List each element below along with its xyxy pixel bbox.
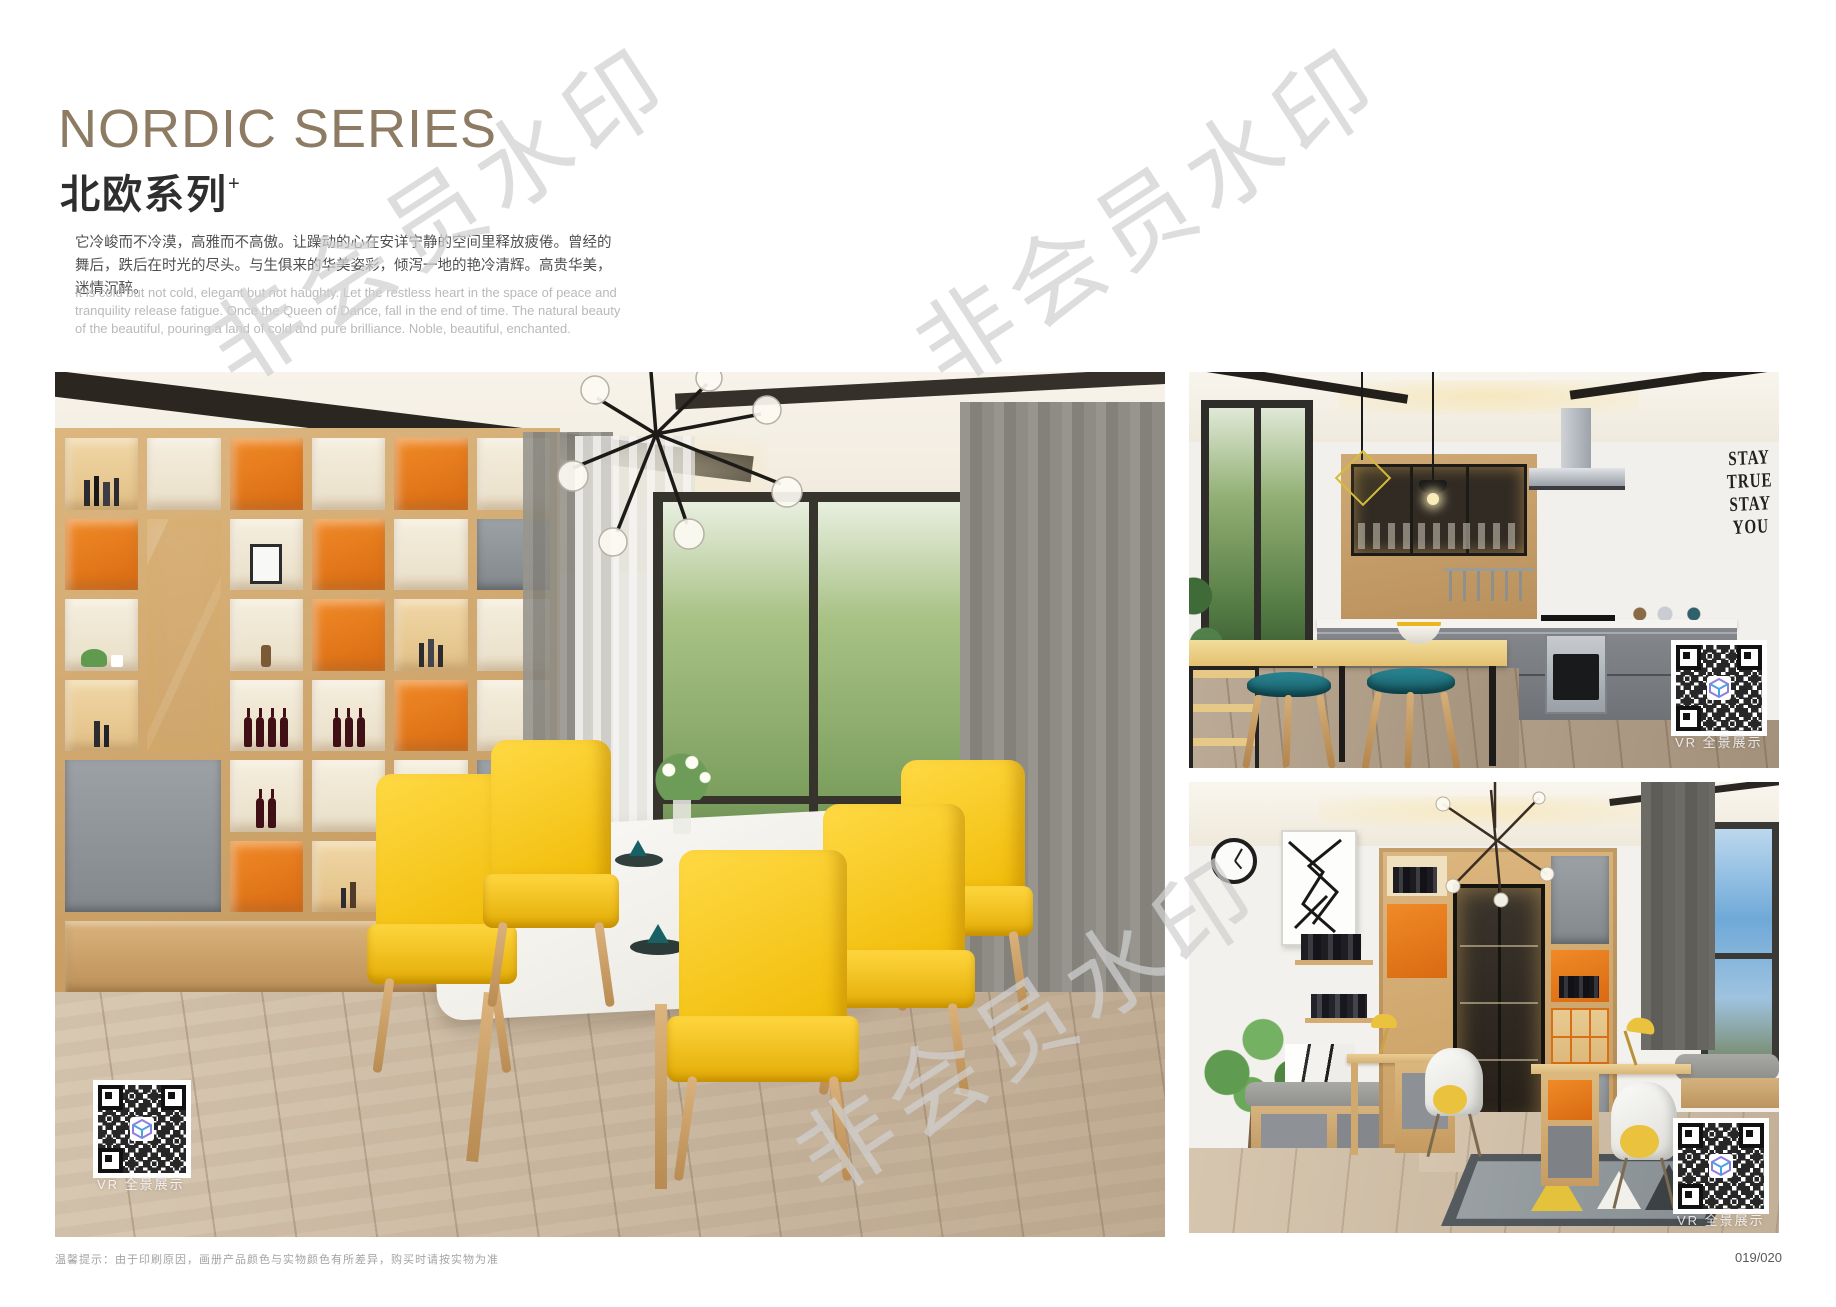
island-leg bbox=[1489, 666, 1496, 766]
wall-clock bbox=[1211, 838, 1257, 884]
dining-chair bbox=[483, 740, 619, 1008]
window-seat-base bbox=[1681, 1078, 1779, 1108]
shelf-cell-books bbox=[65, 438, 138, 510]
subtitle-plus: + bbox=[228, 173, 242, 195]
shelf-cell-orange bbox=[312, 599, 385, 671]
vr-label: VR 全景展示 bbox=[1677, 1210, 1765, 1229]
shelf-cell-books bbox=[394, 599, 467, 671]
pendant-light bbox=[1432, 372, 1434, 484]
bookcase-cubby-grid bbox=[1551, 1008, 1609, 1064]
range-hood bbox=[1529, 468, 1625, 490]
desk-chair bbox=[1425, 1048, 1483, 1158]
shelf-cell bbox=[312, 438, 385, 510]
island-leg bbox=[1339, 666, 1345, 762]
qr-code bbox=[1673, 1118, 1769, 1214]
sputnik-chandelier bbox=[555, 372, 855, 577]
place-setting bbox=[615, 840, 663, 868]
shelf-cell-wine bbox=[230, 680, 303, 752]
shelf-gray-cabinet bbox=[65, 760, 221, 912]
vr-cube-icon bbox=[130, 1117, 154, 1141]
catalog-page: { "page": { "title_en": "NORDIC SERIES",… bbox=[0, 0, 1836, 1307]
shelf-cell bbox=[147, 438, 220, 510]
table-leg bbox=[655, 1004, 667, 1189]
built-in-oven bbox=[1545, 634, 1607, 714]
pendant-bulb bbox=[1427, 493, 1439, 505]
pendant-shade bbox=[1419, 480, 1447, 493]
page-title: NORDIC SERIES bbox=[58, 98, 497, 160]
shelf-books bbox=[1301, 934, 1361, 960]
wood-floor bbox=[55, 992, 1165, 1237]
leaning-frames bbox=[1285, 1044, 1355, 1082]
wall-shelf bbox=[1295, 960, 1373, 965]
curtain-right bbox=[1641, 782, 1715, 1050]
bar-stool bbox=[1367, 668, 1455, 768]
subtitle-text: 北欧系列 bbox=[60, 173, 228, 217]
qr-code bbox=[93, 1080, 191, 1178]
wall-art-text: STAY TRUE STAY YOU bbox=[1724, 447, 1776, 541]
vr-label: VR 全景展示 bbox=[1675, 732, 1763, 751]
shelf-cell-orange bbox=[394, 438, 467, 510]
desk-lamp bbox=[1365, 1014, 1405, 1056]
page-subtitle-cn: 北欧系列+ bbox=[60, 162, 242, 220]
page-number: 019/020 bbox=[1735, 1250, 1782, 1265]
wall-art-frame bbox=[1281, 830, 1357, 946]
shelf-cell-orange bbox=[65, 519, 138, 591]
qr-code bbox=[1671, 640, 1767, 736]
flower-centerpiece bbox=[643, 744, 723, 834]
sputnik-chandelier-small bbox=[1421, 782, 1571, 912]
desk-chair bbox=[1611, 1082, 1677, 1208]
pendant-light bbox=[1361, 372, 1363, 460]
footer-disclaimer: 温馨提示：由于印刷原因，画册产品颜色与实物颜色有所差异，购买时请按实物为准 bbox=[55, 1251, 499, 1267]
bar-stool bbox=[1247, 672, 1331, 768]
shelf-cell-orange bbox=[230, 841, 303, 913]
bookcase-cell-orange bbox=[1551, 950, 1609, 1002]
counter-top bbox=[1317, 619, 1737, 628]
hanging-utensils bbox=[1449, 571, 1529, 601]
study-room-photo: VR 全景展示 bbox=[1189, 782, 1779, 1233]
shelf-cell-orange bbox=[312, 519, 385, 591]
desk-cabinet bbox=[1541, 1074, 1599, 1186]
dining-room-photo: VR 全景展示 bbox=[55, 372, 1165, 1237]
shelf-cell-glass-cabinet bbox=[147, 519, 220, 752]
shelf-cell-orange bbox=[394, 680, 467, 752]
shelf-cell-orange bbox=[230, 438, 303, 510]
shelf-cell-plant bbox=[65, 599, 138, 671]
watermark: 非会员水印 bbox=[175, 7, 695, 412]
vr-cube-icon bbox=[1707, 676, 1731, 700]
watermark: 非会员水印 bbox=[885, 7, 1405, 412]
cooktop bbox=[1541, 615, 1615, 621]
island-counter-top bbox=[1189, 640, 1507, 666]
shelf-cell-wine bbox=[230, 760, 303, 832]
shelf-cell-frame bbox=[230, 519, 303, 591]
dining-chair bbox=[667, 850, 859, 1182]
counter-items bbox=[1629, 600, 1719, 620]
desk-lamp bbox=[1605, 1018, 1657, 1068]
bookcase-cell-orange bbox=[1387, 904, 1447, 978]
kitchen-photo: STAY TRUE STAY YOU VR 全景展示 bbox=[1189, 372, 1779, 768]
shelf-cell-books bbox=[65, 680, 138, 752]
shelf-cell bbox=[394, 519, 467, 591]
vr-label: VR 全景展示 bbox=[97, 1174, 185, 1193]
shelf-cell bbox=[230, 599, 303, 671]
shelf-cell-wine bbox=[312, 680, 385, 752]
range-hood-chimney bbox=[1561, 408, 1591, 470]
intro-paragraph-en: It is cold but not cold, elegant but not… bbox=[75, 284, 623, 338]
vr-cube-icon bbox=[1709, 1154, 1733, 1178]
desk-leg bbox=[1351, 1063, 1358, 1155]
